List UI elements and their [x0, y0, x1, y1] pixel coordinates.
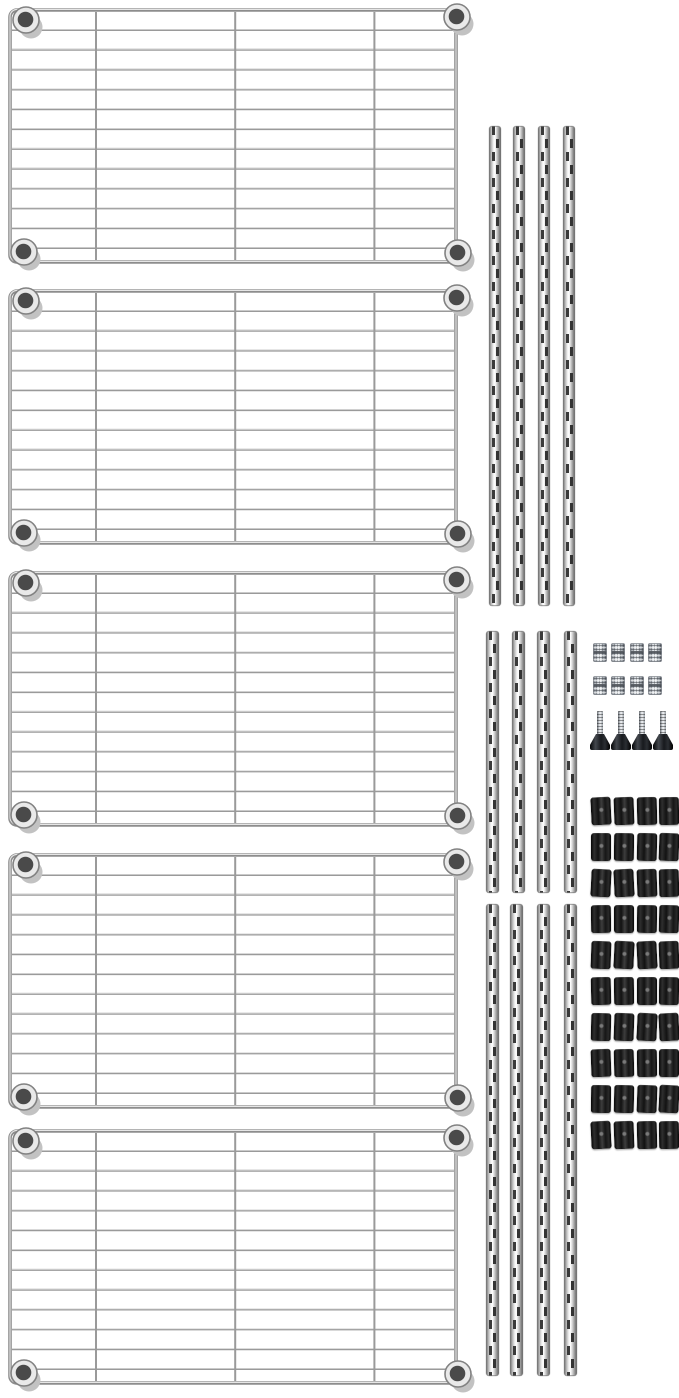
sleeve-clip: [591, 977, 612, 1005]
sleeve-clip: [658, 941, 679, 970]
foot-base: [653, 734, 673, 750]
pole-bottom-3: [537, 904, 550, 1376]
sleeve-clip: [590, 797, 611, 826]
sleeve-clip: [637, 797, 658, 825]
foot-threaded-stem: [597, 711, 603, 736]
pole-middle-2: [512, 631, 525, 893]
sleeve-clip: [637, 1049, 657, 1077]
sleeve-clip: [659, 905, 679, 933]
pole-connector: [648, 643, 662, 662]
sleeve-clip: [636, 941, 657, 970]
pole-middle-1: [486, 631, 499, 893]
sleeve-clip: [637, 833, 658, 861]
wire-shelf-grid: [2, 845, 470, 1119]
collar-hole: [18, 12, 34, 28]
pole-bottom-1: [486, 904, 499, 1376]
collar-hole: [450, 1090, 466, 1106]
pole-top-1: [489, 126, 501, 606]
sleeve-clip: [659, 797, 679, 825]
pole-top-2: [513, 126, 525, 606]
pole-top-4: [563, 126, 575, 606]
leveling-foot: [632, 711, 652, 751]
foot-threaded-stem: [660, 711, 666, 736]
collar-hole: [18, 1133, 34, 1149]
sleeve-clip: [636, 869, 657, 898]
sleeve-clip: [637, 905, 657, 933]
foot-base: [590, 734, 610, 750]
sleeve-clip: [591, 1085, 611, 1113]
wire-shelf-2: [2, 281, 470, 555]
collar-hole: [449, 854, 465, 870]
collar-hole: [450, 808, 466, 824]
sleeve-clip: [590, 1121, 611, 1150]
foot-base: [632, 734, 652, 750]
wire-shelf-5: [2, 1121, 470, 1395]
wire-shelf-1: [2, 0, 470, 274]
sleeve-clip: [637, 1121, 658, 1149]
sleeve-clip: [659, 1049, 679, 1077]
pole-top-3: [538, 126, 550, 606]
pole-connector: [611, 643, 625, 662]
pole-middle-3: [537, 631, 550, 893]
sleeve-clip: [614, 1049, 635, 1077]
pole-bottom-4: [564, 904, 577, 1376]
leveling-foot: [653, 711, 673, 751]
wire-shelf-grid: [2, 0, 470, 274]
collar-hole: [18, 293, 34, 309]
sleeve-clip: [636, 1085, 657, 1114]
collar-hole: [16, 1365, 32, 1381]
collar-hole: [18, 857, 34, 873]
sleeve-clip: [613, 797, 634, 826]
wire-shelf-4: [2, 845, 470, 1119]
wire-shelf-grid: [2, 281, 470, 555]
leveling-foot: [590, 711, 610, 751]
sleeve-clip: [591, 833, 611, 861]
pole-connector: [630, 676, 644, 695]
product-photo: [0, 0, 679, 1398]
foot-threaded-stem: [618, 711, 624, 736]
sleeve-clip: [614, 833, 634, 861]
foot-threaded-stem: [639, 711, 645, 736]
collar-hole: [16, 244, 32, 260]
wire-shelf-grid: [2, 1121, 470, 1395]
pole-connector: [593, 676, 607, 695]
sleeve-clip: [659, 977, 679, 1005]
sleeve-clip: [591, 905, 611, 933]
pole-middle-4: [564, 631, 577, 893]
sleeve-clip: [613, 1013, 634, 1042]
sleeve-clip: [637, 977, 657, 1005]
collar-hole: [450, 1366, 466, 1382]
collar-hole: [18, 575, 34, 591]
sleeve-clip: [590, 1049, 611, 1078]
sleeve-clip: [590, 869, 611, 898]
wire-shelf-3: [2, 563, 470, 837]
sleeve-clip: [614, 905, 634, 933]
sleeve-clip: [591, 1013, 612, 1041]
collar-hole: [450, 245, 466, 261]
collar-hole: [449, 1130, 465, 1146]
foot-base: [611, 734, 631, 750]
sleeve-clip: [613, 869, 634, 898]
sleeve-clip: [658, 833, 679, 862]
sleeve-clip: [658, 1085, 679, 1114]
sleeve-clip: [590, 941, 611, 970]
wire-shelf-grid: [2, 563, 470, 837]
leveling-foot: [611, 711, 631, 751]
sleeve-clip: [613, 941, 634, 970]
collar-hole: [16, 525, 32, 541]
sleeve-clip: [614, 1085, 635, 1113]
sleeve-clip: [659, 869, 679, 897]
collar-hole: [449, 572, 465, 588]
collar-hole: [450, 526, 466, 542]
collar-hole: [449, 290, 465, 306]
sleeve-clip: [614, 977, 634, 1005]
collar-hole: [16, 807, 32, 823]
sleeve-clip: [659, 1121, 679, 1149]
pole-connector: [593, 643, 607, 662]
collar-hole: [449, 9, 465, 25]
sleeve-clip: [613, 1121, 634, 1150]
sleeve-clip: [636, 1013, 657, 1042]
pole-connector: [648, 676, 662, 695]
collar-hole: [16, 1089, 32, 1105]
pole-bottom-2: [510, 904, 523, 1376]
sleeve-clip: [658, 1013, 679, 1042]
pole-connector: [630, 643, 644, 662]
pole-connector: [611, 676, 625, 695]
